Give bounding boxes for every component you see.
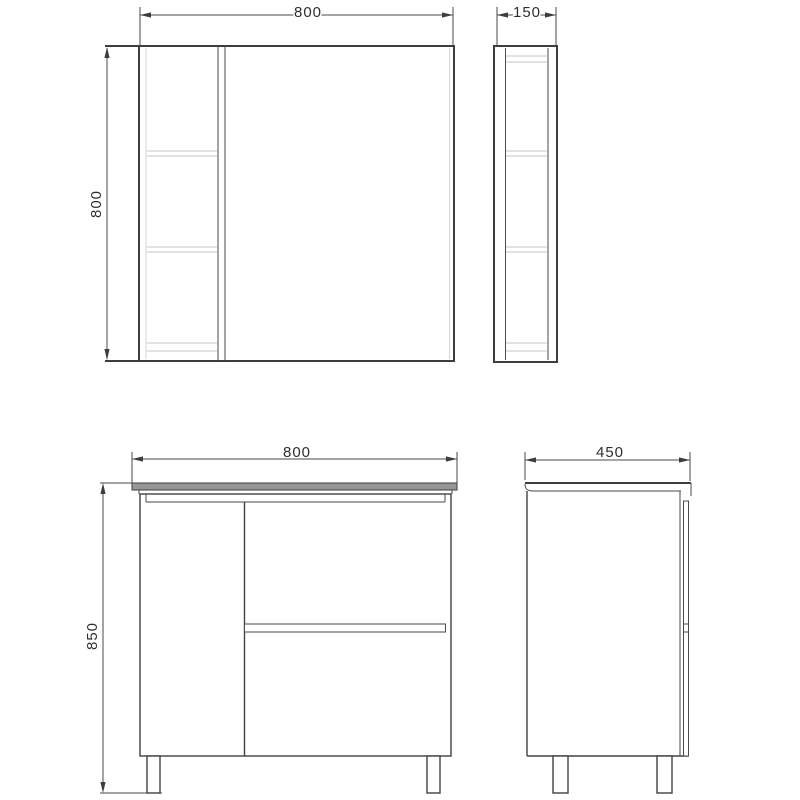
mirror-carcass-outline [139, 46, 454, 361]
vanity-width-label: 800 [283, 444, 311, 461]
vanity-side-leg-front [553, 756, 568, 793]
arrowhead-right [442, 12, 453, 17]
arrowhead-right [446, 456, 457, 461]
arrowhead-right [679, 457, 690, 462]
arrowhead-up [100, 483, 105, 494]
arrowhead-left [525, 457, 536, 462]
mirror-height-label: 800 [88, 190, 105, 218]
countertop [132, 483, 457, 490]
vanity-side-view: 450 [525, 444, 691, 793]
vanity-front-view: 800 850 [84, 444, 457, 793]
arrowhead-down [100, 782, 105, 793]
vanity-side-leg-back [657, 756, 672, 793]
arrowhead-left [140, 12, 151, 17]
mirror-height-dimension: 800 [88, 46, 140, 361]
mirror-depth-label: 150 [513, 4, 541, 21]
technical-drawing-page: 800 800 [0, 0, 800, 800]
drawer-groove [245, 624, 446, 632]
vanity-leg-right [427, 756, 440, 793]
vanity-depth-label: 450 [596, 444, 624, 461]
arrowhead-up [104, 47, 109, 58]
front-slab-edge [684, 501, 689, 756]
vanity-depth-dimension: 450 [525, 444, 690, 481]
arrowhead-right [545, 12, 556, 17]
mirror-cabinet-side-view: 150 [494, 4, 557, 362]
technical-drawing: 800 800 [0, 0, 800, 800]
mirror-width-label: 800 [294, 4, 322, 21]
countertop-side-underside [525, 484, 681, 491]
mirror-depth-dimension: 150 [497, 4, 556, 46]
arrowhead-down [104, 349, 109, 360]
mirror-cabinet-front-view: 800 800 [88, 4, 454, 361]
arrowhead-left [497, 12, 508, 17]
vanity-height-label: 850 [84, 622, 101, 650]
vanity-leg-left [147, 756, 160, 793]
arrowhead-left [132, 456, 143, 461]
vanity-width-dimension: 800 [132, 444, 457, 486]
